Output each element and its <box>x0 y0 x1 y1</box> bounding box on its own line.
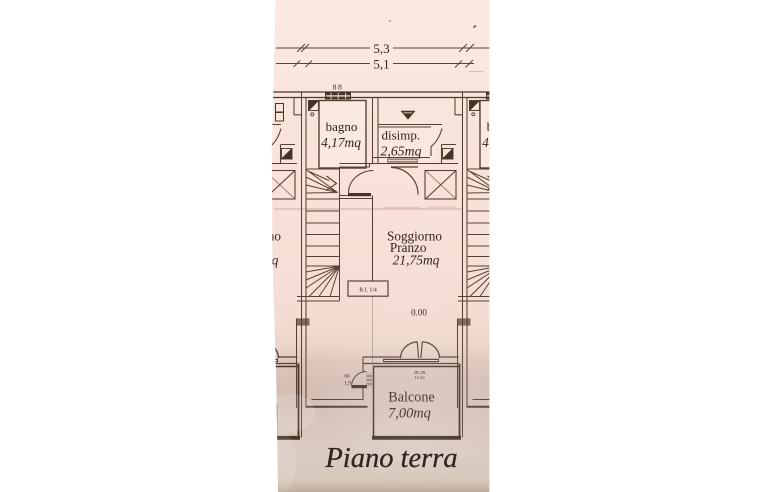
svg-text:Piano terra: Piano terra <box>324 443 457 474</box>
svg-text:5,3: 5,3 <box>373 41 389 56</box>
svg-text:88: 88 <box>333 83 344 92</box>
svg-text:5,1: 5,1 <box>373 57 389 72</box>
